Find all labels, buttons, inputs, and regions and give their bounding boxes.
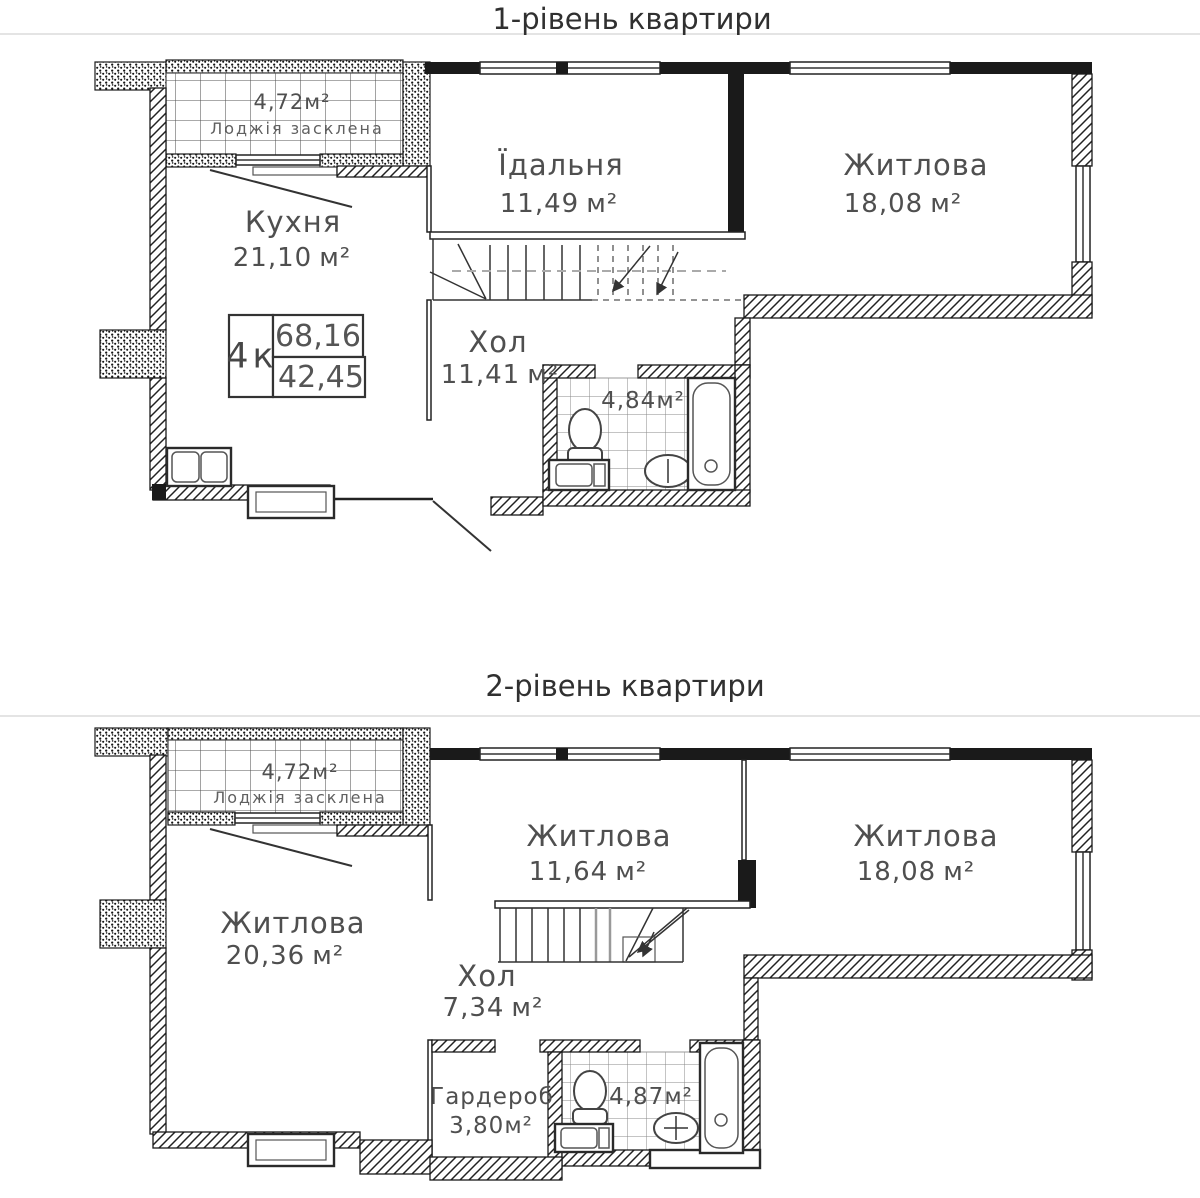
kitchen-area-unit: м² (319, 243, 351, 273)
unit-total-area-value: 68,16 (275, 322, 361, 352)
living-area-label: 18,08м² (844, 191, 962, 217)
living-left-area-unit: м² (312, 941, 344, 971)
stair-direction-arrow (657, 252, 678, 294)
loggia2-name-label: Лоджія засклена (213, 790, 387, 806)
bathroom-area-label: 4,84м² (601, 390, 685, 413)
level-1-bathroom (543, 365, 750, 506)
level-2-bathroom-wardrobe (430, 1040, 760, 1180)
living-right-area-label: 18,08м² (857, 859, 975, 885)
hall-area-label: 11,41м² (441, 362, 559, 388)
living-mid-name-label: Житлова (526, 822, 671, 851)
bathroom2-area-value: 4,87 (609, 1084, 664, 1110)
wardrobe-area-value: 3,80 (449, 1113, 504, 1139)
wardrobe-area-label: 3,80м² (449, 1115, 533, 1138)
bathtub-fixture (700, 1043, 743, 1153)
bathroom-area-unit: м² (656, 388, 685, 414)
kitchen-area-value: 21,10 (233, 243, 312, 273)
sink-fixture (549, 460, 609, 490)
living-mid-area-label: 11,64м² (529, 859, 647, 885)
kitchen-area-label: 21,10м² (233, 245, 351, 271)
window-sill (248, 1134, 334, 1166)
dining-area-label: 11,49м² (500, 191, 618, 217)
hall2-name-label: Хол (457, 962, 516, 991)
level-2-stairs (495, 901, 750, 962)
loggia2-area-label: 4,72м² (261, 762, 338, 783)
loggia2-area-value: 4,72 (261, 760, 312, 784)
living-right-area-value: 18,08 (857, 857, 936, 887)
stair-direction-arrow (613, 246, 650, 291)
loggia-area-value: 4,72 (253, 90, 304, 114)
wardrobe-area-unit: м² (504, 1113, 533, 1139)
loggia2-area-unit: м² (312, 760, 338, 784)
bathroom2-area-unit: м² (664, 1084, 693, 1110)
bathtub-fixture (688, 378, 735, 490)
loggia-area-unit: м² (304, 90, 330, 114)
window-sill (248, 486, 334, 518)
living-area-value: 18,08 (844, 189, 923, 219)
entrance-door-leaf (433, 501, 491, 551)
toilet-fixture (568, 409, 602, 464)
unit-type-value: 4к (226, 340, 277, 375)
hall-area-value: 11,41 (441, 360, 520, 390)
floor-plan-level-2: 2-рівень квартири (0, 650, 1200, 1198)
hall2-area-unit: м² (511, 993, 543, 1023)
level-1-kitchen-fixtures (152, 448, 334, 518)
floor-plan-page: 1-рівень квартири (0, 0, 1200, 1198)
living-right-area-unit: м² (943, 857, 975, 887)
living-left-area-label: 20,36м² (226, 943, 344, 969)
living-name-label: Житлова (843, 151, 988, 180)
living-left-area-value: 20,36 (226, 941, 305, 971)
washbasin-fixture (645, 455, 691, 487)
hall-name-label: Хол (468, 328, 527, 357)
toilet-fixture (573, 1071, 607, 1124)
dining-area-value: 11,49 (500, 189, 579, 219)
wardrobe-name-label: Гардероб (430, 1086, 554, 1109)
floor-plan-level-1: 1-рівень квартири (0, 0, 1200, 620)
bathroom2-area-label: 4,87м² (609, 1086, 693, 1109)
hall-area-unit: м² (527, 360, 559, 390)
hall2-area-value: 7,34 (443, 993, 505, 1023)
bathroom-area-value: 4,84 (601, 388, 656, 414)
living-left-name-label: Житлова (220, 909, 365, 938)
sink-fixture (555, 1124, 613, 1152)
kitchen-name-label: Кухня (245, 208, 341, 237)
loggia-door-leaf (210, 829, 352, 866)
washbasin-fixture (654, 1113, 698, 1143)
dining-area-unit: м² (586, 189, 618, 219)
unit-living-area-value: 42,45 (278, 363, 364, 393)
level-1-plan-drawing (0, 0, 1200, 620)
living-mid-area-value: 11,64 (529, 857, 608, 887)
stair-direction-arrow (638, 910, 689, 952)
living-area-unit: м² (930, 189, 962, 219)
hall2-area-label: 7,34м² (443, 995, 544, 1021)
loggia-name-label: Лоджія засклена (210, 121, 384, 137)
living-right-name-label: Житлова (853, 822, 998, 851)
dining-name-label: Їдальня (498, 151, 623, 180)
level-2-plan-drawing (0, 650, 1200, 1198)
level-1-stairs (430, 232, 745, 300)
living-mid-area-unit: м² (615, 857, 647, 887)
loggia-area-label: 4,72м² (253, 92, 330, 113)
